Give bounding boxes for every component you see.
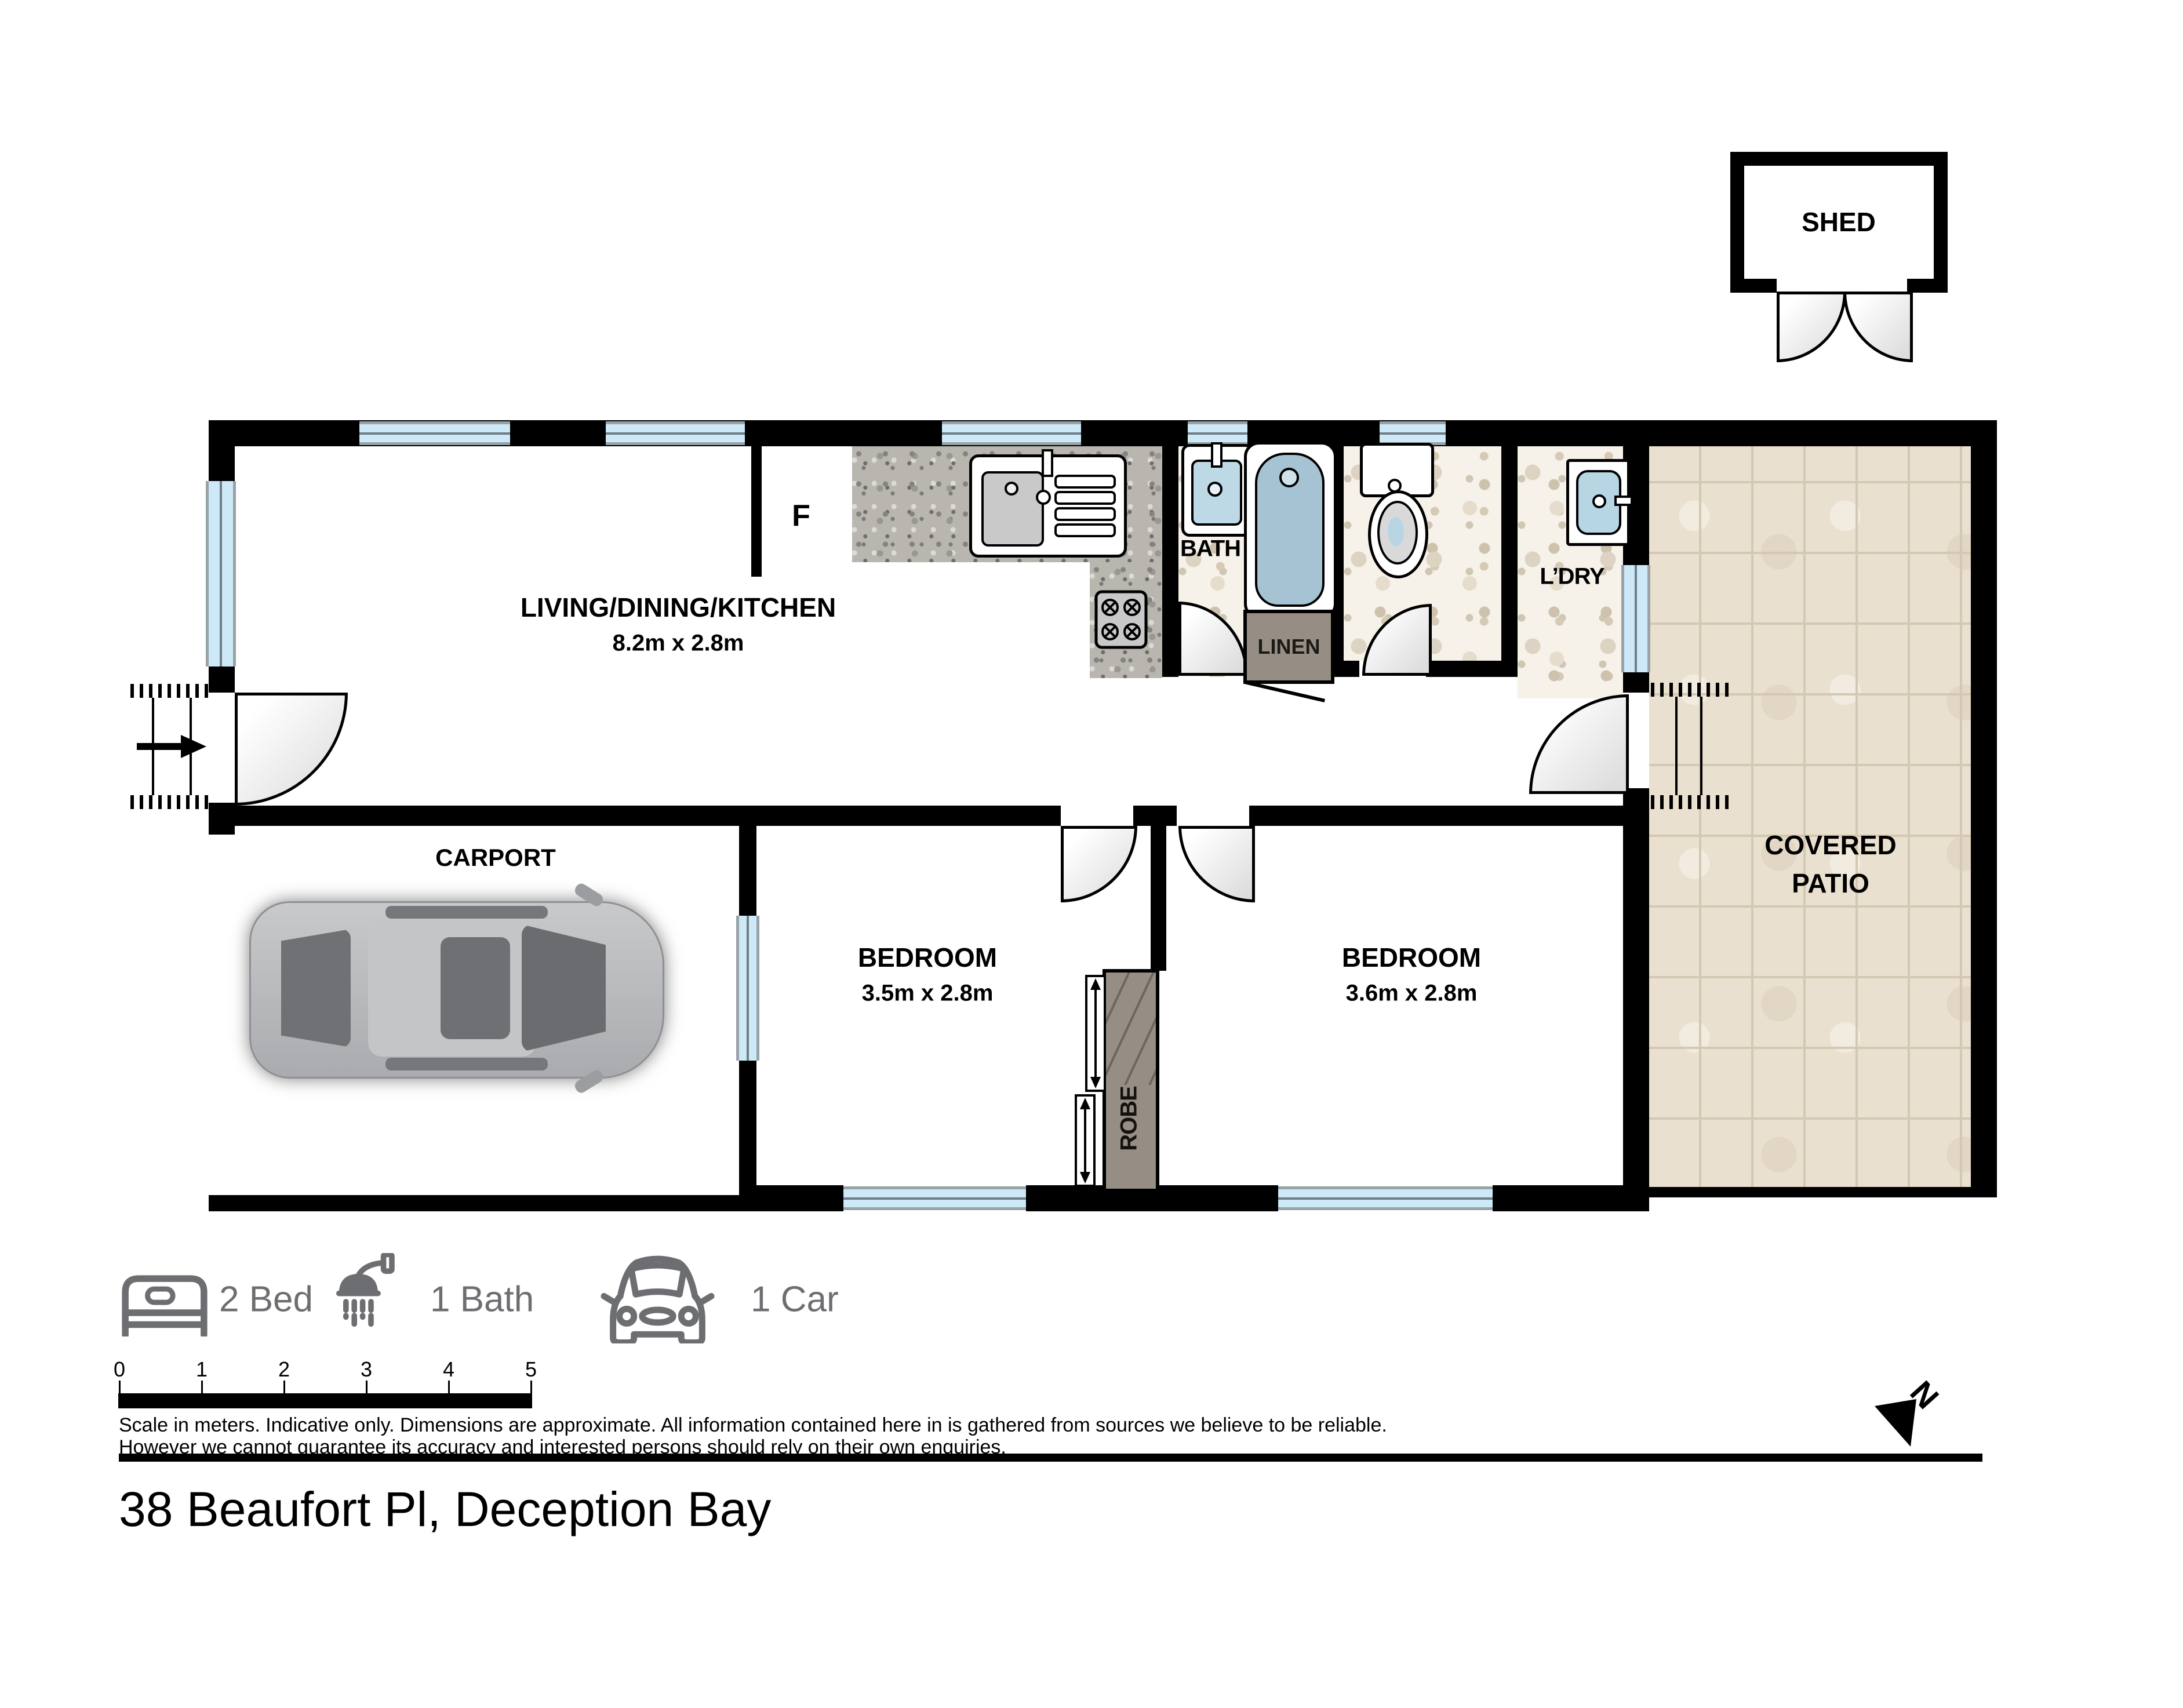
robe-slider-track-1 <box>1085 975 1106 1092</box>
wall-left-a <box>209 446 235 481</box>
page-title: 38 Beaufort Pl, Deception Bay <box>119 1481 771 1538</box>
legend-bath-label: 1 Bath <box>430 1279 534 1320</box>
patio-label-line1: COVERED <box>1764 829 1896 861</box>
laundry-window <box>1621 565 1650 672</box>
living-window-1 <box>359 421 510 445</box>
shed-label: SHED <box>1802 206 1876 238</box>
living-label: LIVING/DINING/KITCHEN <box>521 592 836 623</box>
robe-slider-track-2 <box>1075 1094 1096 1187</box>
living-dims: 8.2m x 2.8m <box>613 631 744 657</box>
scale-tick-label: 4 <box>443 1357 454 1382</box>
patio-step-edge-1 <box>1675 697 1678 795</box>
linen-closet: LINEN <box>1243 610 1334 684</box>
shower-icon <box>322 1253 399 1340</box>
hall-wall-stub <box>1133 806 1177 826</box>
fridge-nook-stub <box>751 446 762 577</box>
legend-car-label: 1 Car <box>751 1279 839 1320</box>
bedroom2-window-bottom <box>1278 1186 1493 1210</box>
carport-wall-bottom <box>209 1195 739 1211</box>
car-windshield <box>522 924 606 1052</box>
shed-wall-left <box>1730 152 1744 293</box>
laundry-tub-drain <box>1592 494 1606 508</box>
car-icon <box>598 1251 717 1343</box>
bathtub <box>1244 442 1337 619</box>
bath-window <box>1188 421 1247 445</box>
scale-tick <box>530 1381 532 1393</box>
sink-tap-base <box>1036 490 1051 505</box>
sink-drainer-bar <box>1054 523 1116 537</box>
scale-bar-rule <box>118 1393 532 1408</box>
shed-wall-top <box>1730 152 1948 166</box>
bathtub-drain <box>1279 468 1299 487</box>
bath-label: BATH <box>1180 536 1240 562</box>
sink-drain-hole <box>1005 482 1018 496</box>
scale-tick <box>448 1381 450 1393</box>
bottom-wall-c <box>1493 1185 1649 1211</box>
fridge-label: F <box>792 498 810 533</box>
shed-door-left <box>1777 292 1846 362</box>
toilet-water <box>1388 517 1404 546</box>
bedroom2-label: BEDROOM <box>1342 942 1481 973</box>
bottom-wall-a <box>739 1185 843 1211</box>
scale-tick <box>201 1381 203 1393</box>
car-rear-window <box>281 929 351 1047</box>
cooktop <box>1094 590 1148 649</box>
car <box>249 895 661 1081</box>
scale-tick-label: 0 <box>114 1357 125 1382</box>
patio-edge-bottom <box>1649 1187 1997 1197</box>
sink-drainer-bar <box>1054 475 1116 489</box>
scale-tick-label: 2 <box>278 1357 290 1382</box>
bed-icon <box>116 1262 213 1336</box>
wc-wall-bottom-right <box>1426 661 1501 677</box>
entry-steps-hatch-top <box>130 684 212 698</box>
patio-steps-hatch-bottom <box>1651 795 1729 809</box>
patio-steps-hatch-top <box>1651 683 1729 697</box>
kitchen-bath-wall <box>1162 446 1178 677</box>
robe-label: ROBE <box>1116 1086 1143 1151</box>
car-trim-bottom <box>385 1058 548 1070</box>
disclaimer-line1: Scale in meters. Indicative only. Dimens… <box>119 1414 1387 1437</box>
bedroom1-window-side <box>736 916 759 1061</box>
slider-arrow-icon <box>1087 977 1104 1090</box>
hall-wall-b <box>1249 806 1623 826</box>
car-sunroof <box>441 937 510 1039</box>
shed-wall-bottom-left <box>1730 279 1777 293</box>
laundry-tub <box>1566 459 1630 546</box>
hall-wall-a <box>209 806 1061 826</box>
wc-wall-bottom-left <box>1344 661 1359 677</box>
wall-left-b <box>209 667 235 693</box>
bedroom1-wall-left-a <box>739 826 756 916</box>
patio-wall-right <box>1971 446 1997 1197</box>
living-window-2 <box>606 421 745 445</box>
bath-sink <box>1181 444 1253 537</box>
shed-door-right <box>1843 292 1913 362</box>
bedroom-divider-wall <box>1151 826 1166 971</box>
entry-arrow-icon <box>134 734 208 759</box>
bedroom2-door <box>1178 826 1255 902</box>
bedroom2-dims: 3.6m x 2.8m <box>1346 981 1478 1007</box>
footer-divider <box>119 1454 1982 1462</box>
scale-tick <box>283 1381 285 1393</box>
wc-window <box>1380 421 1446 445</box>
bath-sink-drain <box>1207 482 1223 497</box>
shed-wall-right <box>1934 152 1948 293</box>
patio-label-line2: PATIO <box>1792 868 1869 899</box>
living-window-left <box>206 481 236 667</box>
linen-label: LINEN <box>1258 635 1320 659</box>
wall-right-b <box>1623 672 1649 693</box>
bedroom1-window-bottom <box>843 1186 1026 1210</box>
bedroom1-dims: 3.5m x 2.8m <box>862 981 994 1007</box>
sink-drainer-bar <box>1054 491 1116 505</box>
kitchen-window <box>942 421 1081 445</box>
scale-tick-label: 5 <box>525 1357 537 1382</box>
sink-drainer-bar <box>1054 507 1116 521</box>
floorplan-canvas: SHED <box>0 0 2183 1708</box>
scale-tick <box>119 1381 121 1393</box>
entry-door <box>235 693 348 806</box>
patio-step-edge-2 <box>1700 697 1702 795</box>
car-trim-top <box>385 906 548 919</box>
scale-tick <box>366 1381 368 1393</box>
laundry-tub-tap <box>1614 496 1633 506</box>
sink-tap <box>1042 449 1053 477</box>
slider-arrow-icon <box>1077 1097 1093 1185</box>
scale-tick-label: 3 <box>361 1357 372 1382</box>
shed-wall-bottom-right <box>1907 279 1948 293</box>
bath-sink-tap <box>1211 442 1223 468</box>
kitchen-sink-unit <box>969 454 1127 558</box>
back-door <box>1529 694 1629 794</box>
wc-laundry-wall <box>1501 446 1518 677</box>
laundry-label: L’DRY <box>1540 564 1604 590</box>
legend-bed-label: 2 Bed <box>219 1279 313 1320</box>
carport-label: CARPORT <box>435 844 556 872</box>
wall-right-c <box>1623 788 1649 1211</box>
entry-steps-hatch-bottom <box>130 795 212 809</box>
bedroom1-label: BEDROOM <box>858 942 997 973</box>
bedroom1-door <box>1061 826 1137 902</box>
robe-block <box>1103 969 1159 1192</box>
scale-tick-label: 1 <box>196 1357 208 1382</box>
covered-patio-floor <box>1649 446 1971 1188</box>
